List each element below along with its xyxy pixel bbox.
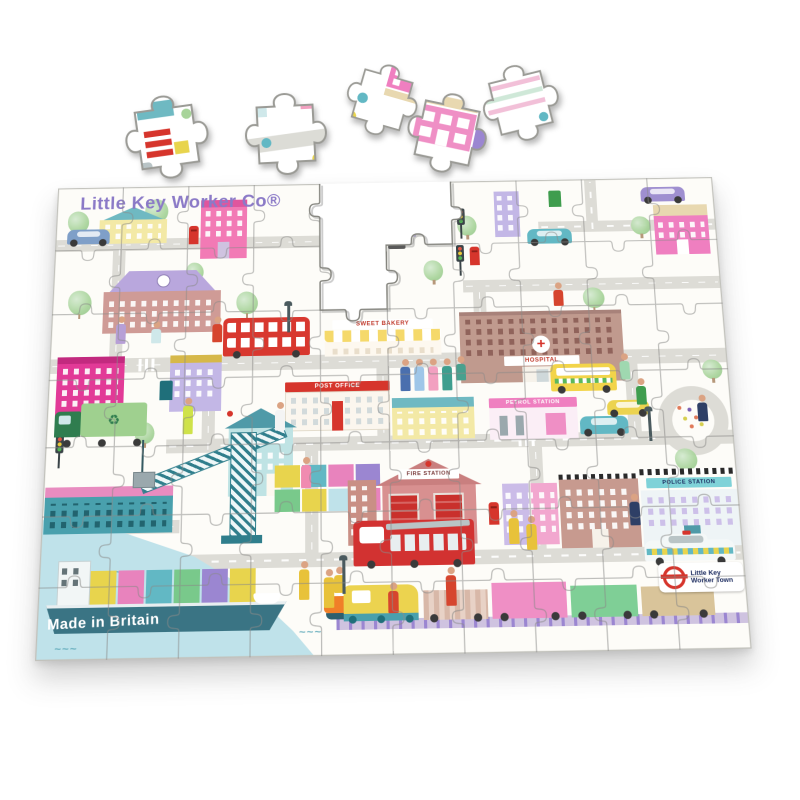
tree — [423, 260, 443, 281]
dock-crane — [122, 406, 297, 550]
surgeon-figure — [453, 356, 468, 381]
police-station-sign-label: POLICE STATION — [662, 479, 716, 486]
firefighter-figure — [322, 569, 337, 609]
purple-car — [640, 187, 685, 202]
tree — [702, 359, 723, 379]
small-boat — [253, 593, 280, 604]
train-driver-figure — [386, 582, 401, 614]
teal-car — [580, 416, 629, 435]
corner-cafe — [653, 204, 711, 254]
lavender-house — [494, 191, 521, 237]
doctor-figure — [440, 358, 455, 391]
police-officer-figure — [694, 395, 710, 423]
child-figure-red — [210, 316, 224, 343]
lavender-house — [386, 189, 416, 237]
fire-engine — [353, 519, 475, 567]
traffic-light — [457, 208, 465, 225]
puzzle-artwork: ~~~ ~~~ ~~~ ~~~ — [35, 177, 752, 661]
bakery-sign: SWEET BAKERY — [332, 318, 432, 329]
postal-worker-figure — [273, 402, 287, 432]
ambulance — [550, 363, 617, 391]
purple-house — [169, 355, 222, 412]
postbox — [189, 226, 199, 244]
carer-figure — [617, 353, 633, 380]
yellow-shop — [392, 397, 475, 440]
puzzle-product-photo: ~~~ ~~~ ~~~ ~~~ — [0, 0, 800, 800]
dark-mini-car — [388, 241, 406, 250]
recycling-bin — [548, 190, 561, 206]
child-figure — [149, 321, 163, 344]
traffic-light — [456, 245, 464, 262]
builder-figure-red — [443, 567, 459, 607]
train-wagon — [491, 582, 567, 619]
police-light — [682, 531, 691, 535]
zebra-crossing — [138, 359, 156, 372]
brand-title: Little Key Worker Co® — [80, 192, 281, 215]
post-office-building: POST OFFICE — [285, 381, 390, 432]
roundel-icon — [662, 566, 686, 589]
firefighter-figure — [297, 561, 312, 601]
tree — [582, 287, 605, 308]
logo-line1: Little Key — [690, 569, 721, 577]
logo-line2: Worker Town — [691, 577, 734, 585]
road — [584, 179, 599, 232]
loose-puzzle-piece-2 — [233, 79, 338, 189]
train-wagon — [570, 585, 638, 618]
worker-town-logo: Little Key Worker Town — [658, 562, 745, 593]
police-officer-figure — [627, 494, 643, 527]
wave-marks: ~~~ — [54, 643, 78, 656]
wheelie-bin — [159, 381, 172, 401]
figure-red — [551, 282, 566, 307]
double-decker-bus — [223, 317, 310, 357]
nurse-figure — [398, 359, 413, 392]
teacher-figure — [114, 316, 129, 345]
lamp-post — [342, 560, 345, 594]
fire-station-sign-label: FIRE STATION — [407, 471, 451, 478]
postbox — [470, 247, 480, 266]
teal-beetle-car — [527, 228, 572, 243]
bakery-building: SWEET BAKERY — [325, 318, 442, 356]
paramedic-figure — [633, 378, 649, 406]
post-office-sign-label: POST OFFICE — [315, 383, 360, 390]
petrol-station-sign-label: PETROL STATION — [506, 399, 560, 406]
tree — [68, 291, 93, 316]
firefighter-figure — [506, 510, 522, 545]
police-station-sign: POLICE STATION — [646, 477, 732, 489]
nurse-figure — [426, 358, 441, 391]
flower-bed — [677, 406, 681, 410]
blue-car — [67, 229, 110, 244]
fire-station-sign: FIRE STATION — [398, 468, 459, 479]
police-car — [644, 533, 737, 564]
puzzle-board: ~~~ ~~~ ~~~ ~~~ — [35, 177, 752, 661]
refuse-worker-figure — [180, 398, 195, 436]
bakery-sign-label: SWEET BAKERY — [356, 321, 409, 328]
fire-bell-icon — [425, 461, 431, 467]
dental-nurse-figure — [299, 457, 313, 489]
hospital-sign-label: HOSPITAL — [525, 357, 559, 363]
lamp-post — [287, 306, 290, 333]
tree — [236, 291, 258, 314]
loose-puzzle-piece-1 — [109, 77, 225, 197]
nurse-figure — [412, 359, 427, 392]
firefighter-figure — [524, 516, 540, 551]
wave-marks: ~~~ — [299, 626, 322, 639]
postbox — [488, 502, 499, 525]
train-engine — [343, 584, 418, 621]
petrol-station-building: PETROL STATION — [489, 397, 579, 440]
